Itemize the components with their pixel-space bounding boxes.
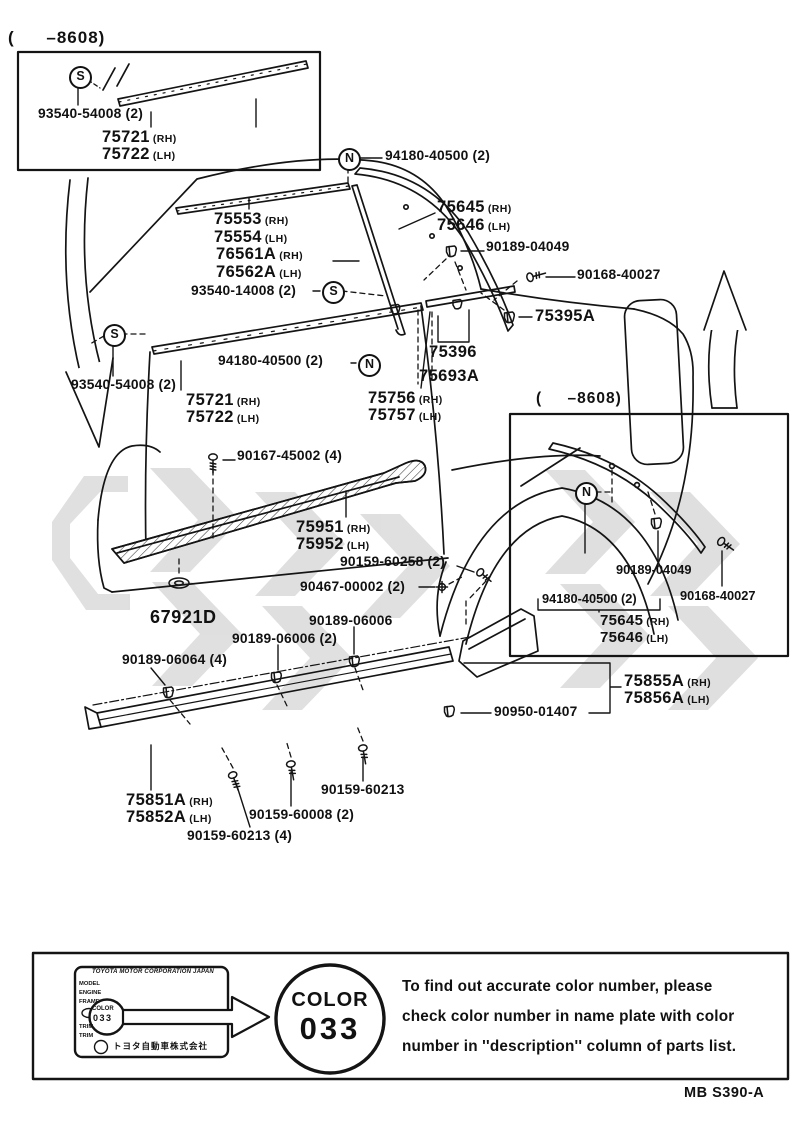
leader-lines [78, 85, 722, 827]
label-90168-40027-inset: 90168-40027 [680, 589, 755, 602]
name-plate-color-value: 033 [93, 1013, 113, 1023]
label-94180-40500-top: 94180-40500 (2) [385, 149, 490, 163]
label-75722-lh-inset: 75722(LH) [102, 146, 175, 163]
clip-icon [272, 672, 282, 683]
name-plate-company: トヨタ自動車株式会社 [113, 1040, 208, 1052]
label-90167-45002: 90167-45002 (4) [237, 449, 342, 463]
label-90189-06006-2: 90189-06006 (2) [232, 632, 337, 646]
label-75851a-rh: 75851A(RH) [126, 792, 213, 809]
label-75395a: 75395A [535, 308, 595, 325]
color-note-line: number in ''description'' column of part… [402, 1032, 784, 1062]
label-67921d: 67921D [150, 608, 217, 627]
name-plate-color-label: COLOR [92, 1006, 114, 1012]
label-90168-40027: 90168-40027 [577, 268, 661, 282]
label-93540-54008-main: 93540-54008 (2) [71, 378, 176, 392]
color-note-line: check color number in name plate with co… [402, 1002, 784, 1032]
color-badge: COLOR 033 [272, 989, 388, 1045]
label-90159-60008: 90159-60008 (2) [249, 808, 354, 822]
symbol-s: S [322, 281, 345, 304]
color-note: To find out accurate color number, pleas… [402, 972, 784, 1062]
label-93540-14008: 93540-14008 (2) [191, 284, 296, 298]
color-badge-value: 033 [272, 1012, 388, 1045]
label-94180-40500-inset: 94180-40500 (2) [542, 592, 637, 605]
clip-icon [652, 518, 662, 529]
symbol-n: N [358, 354, 381, 377]
label-75722-lh-main: 75722(LH) [186, 409, 259, 426]
label-75693a: 75693A [419, 368, 479, 385]
name-plate-row-engine: ENGINE [79, 990, 101, 996]
screw-icon [526, 269, 547, 282]
name-plate-header: TOYOTA MOTOR CORPORATION JAPAN [84, 969, 222, 975]
page-code: MB S390-A [684, 1085, 764, 1101]
label-75855a-rh: 75855A(RH) [624, 673, 711, 690]
name-plate-row-trim: TRIM [79, 1024, 93, 1030]
label-75396: 75396 [429, 344, 477, 361]
down-arrow-icon [66, 178, 113, 447]
up-arrow-icon [704, 271, 746, 408]
label-75645-rh-inset: 75645(RH) [600, 613, 670, 629]
screw-icon [358, 744, 370, 764]
label-75721-rh-inset: 75721(RH) [102, 129, 177, 146]
inset-right-caption: ( –8608) [536, 390, 622, 408]
label-90189-04049-inset: 90189-04049 [616, 563, 691, 576]
label-90159-60213-4: 90159-60213 (4) [187, 829, 292, 843]
name-plate-row-model: MODEL [79, 981, 100, 987]
symbol-s: S [103, 324, 126, 347]
symbol-s: S [69, 66, 92, 89]
label-76561a-rh: 76561A(RH) [216, 246, 303, 263]
label-94180-40500-main: 94180-40500 (2) [218, 354, 323, 368]
clip-icon [447, 246, 457, 257]
label-75757-lh: 75757(LH) [368, 407, 441, 424]
label-75951-rh: 75951(RH) [296, 519, 371, 536]
label-75721-rh-main: 75721(RH) [186, 392, 261, 409]
label-90159-60258: 90159-60258 (2) [340, 555, 445, 569]
label-75756-rh: 75756(RH) [368, 390, 443, 407]
clip-icon [445, 706, 455, 717]
label-75554-lh: 75554(LH) [214, 229, 287, 246]
screw-icon [228, 771, 243, 792]
label-75553-rh: 75553(RH) [214, 211, 289, 228]
color-badge-label: COLOR [272, 989, 388, 1012]
label-75646-lh: 75646(LH) [437, 217, 510, 234]
label-90467-00002: 90467-00002 (2) [300, 580, 405, 594]
label-90950-01407: 90950-01407 [494, 705, 578, 719]
inset-top-left-caption: ( –8608) [8, 28, 105, 48]
label-90189-06006: 90189-06006 [309, 614, 393, 628]
label-75856a-lh: 75856A(LH) [624, 690, 710, 707]
screw-icon [286, 760, 298, 780]
label-75645-rh: 75645(RH) [437, 199, 512, 216]
name-plate-row-frame: FRAME [79, 999, 100, 1005]
symbol-n: N [575, 482, 598, 505]
label-90189-04049: 90189-04049 [486, 240, 570, 254]
parts-catalog-page: ( –8608) ( –8608) S S S N N N 93540-5400… [0, 0, 800, 1134]
label-93540-54008-inset: 93540-54008 (2) [38, 107, 143, 121]
label-76562a-lh: 76562A(LH) [216, 264, 302, 281]
label-75852a-lh: 75852A(LH) [126, 809, 212, 826]
label-90159-60213: 90159-60213 [321, 783, 405, 797]
label-75952-lh: 75952(LH) [296, 536, 369, 553]
symbol-n: N [338, 148, 361, 171]
label-90189-06064: 90189-06064 (4) [122, 653, 227, 667]
color-note-line: To find out accurate color number, pleas… [402, 972, 784, 1002]
name-plate-row-trim: TRIM [79, 1033, 93, 1039]
label-75646-lh-inset: 75646(LH) [600, 630, 668, 646]
arrow-icon [123, 997, 269, 1037]
